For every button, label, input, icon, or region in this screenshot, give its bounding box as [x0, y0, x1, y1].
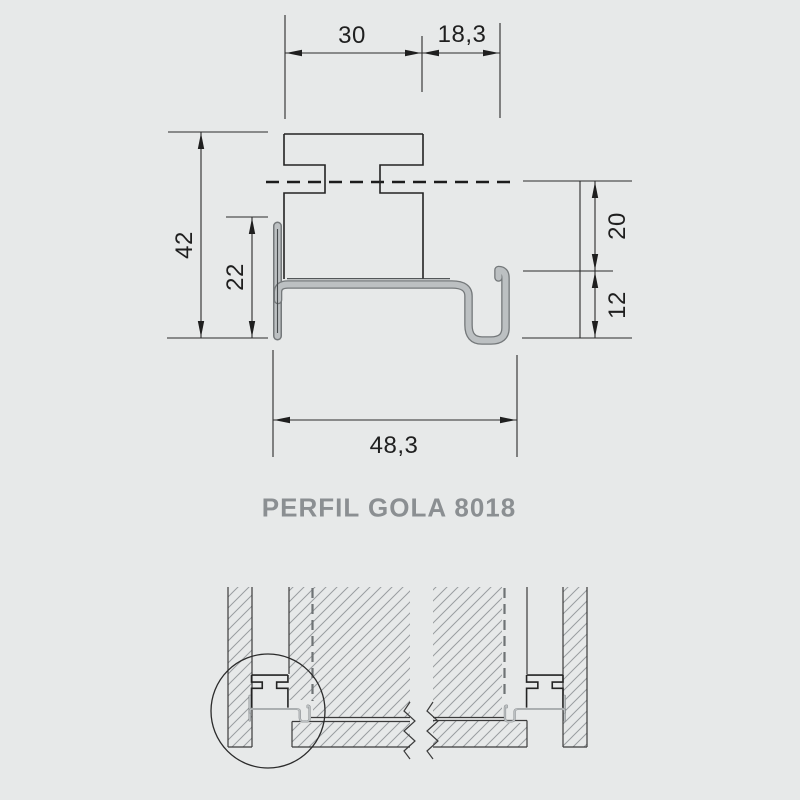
- technical-drawing-page: 30 18,3 42 22 20 12 48,3 PERFIL GOLA 801…: [0, 0, 800, 800]
- dim-label-cap-width: 30: [338, 22, 366, 50]
- profile-cross-section: [278, 134, 506, 341]
- dim-label-upper-step: 20: [604, 212, 632, 240]
- right-cabinet-panel-hatch: [433, 587, 502, 717]
- dim-label-flange-height: 22: [222, 263, 250, 291]
- dimension-arrowheads: [198, 50, 598, 423]
- main-profile-drawing: [167, 15, 632, 457]
- dim-label-top-offset: 18,3: [438, 21, 487, 49]
- right-detail-profile: [505, 675, 565, 721]
- left-cabinet-panel-hatch: [289, 587, 410, 717]
- right-shelf-hatch: [433, 720, 527, 747]
- right-install-detail: [427, 587, 587, 759]
- page-title: PERFIL GOLA 8018: [262, 493, 516, 524]
- dim-label-total-height: 42: [171, 231, 199, 259]
- left-shelf-hatch: [292, 721, 410, 747]
- right-door-panel-hatch: [563, 587, 587, 747]
- dim-label-total-width: 48,3: [370, 432, 419, 460]
- dim-label-lower-step: 12: [604, 291, 632, 319]
- left-install-detail: [211, 587, 415, 768]
- drawing-canvas: [0, 0, 800, 800]
- left-profile-recess: [252, 669, 289, 724]
- dimension-lines: [167, 15, 632, 457]
